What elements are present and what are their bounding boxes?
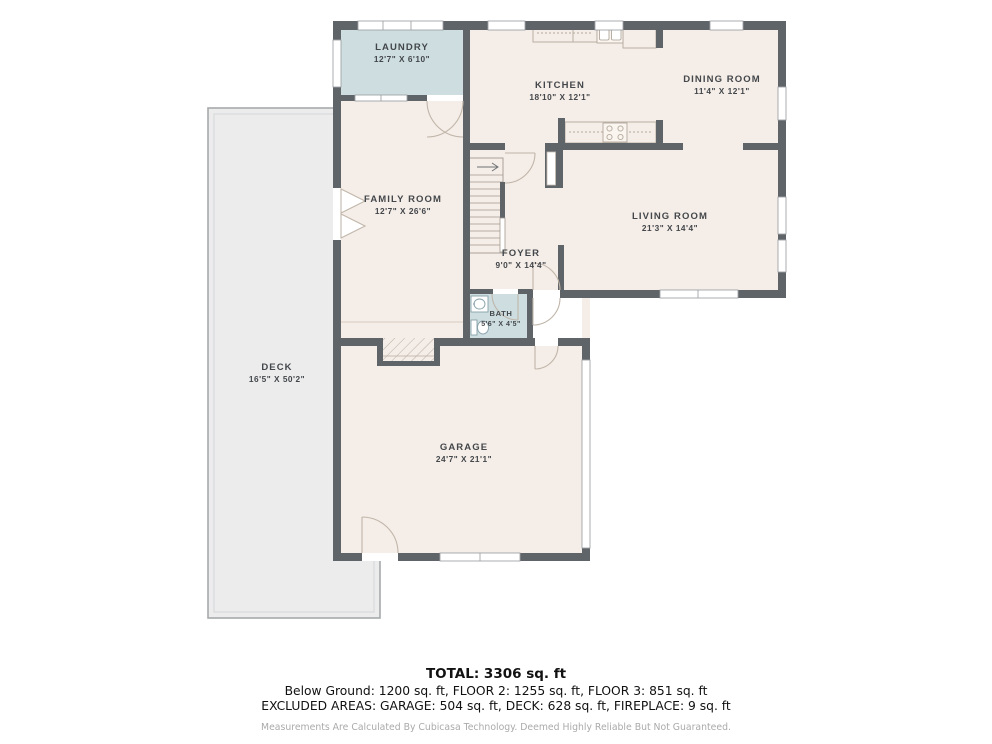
floor-plan-svg: LAUNDRY 12'7" X 6'10" KITCHEN 18'10" X 1… (0, 0, 992, 660)
room-label-bath: BATH (490, 309, 513, 318)
room-label-garage: GARAGE (440, 442, 488, 453)
bathroom-sink-icon (471, 296, 488, 312)
front-stoop (533, 298, 582, 338)
basement-stairs-hatch-icon (377, 338, 440, 366)
room-label-living: LIVING ROOM (632, 211, 708, 222)
fireplace-icon (545, 143, 563, 188)
footer: TOTAL: 3306 sq. ft Below Ground: 1200 sq… (0, 666, 992, 733)
room-dims-family: 12'7" X 26'6" (375, 206, 431, 216)
room-label-laundry: LAUNDRY (375, 42, 429, 53)
stair-railing-wall (500, 182, 505, 218)
room-dims-garage: 24'7" X 21'1" (436, 454, 492, 464)
room-label-family: FAMILY ROOM (364, 194, 442, 205)
room-label-kitchen: KITCHEN (535, 80, 585, 91)
total-area-text: TOTAL: 3306 sq. ft (0, 666, 992, 682)
floor-plan: LAUNDRY 12'7" X 6'10" KITCHEN 18'10" X 1… (0, 0, 992, 660)
garage-door-band (582, 360, 590, 548)
room-dims-laundry: 12'7" X 6'10" (374, 54, 430, 64)
room-dims-dining: 11'4" X 12'1" (694, 86, 750, 96)
room-dims-foyer: 9'0" X 14'4" (495, 260, 546, 270)
room-label-foyer: FOYER (502, 248, 540, 259)
disclaimer-text: Measurements Are Calculated By Cubicasa … (0, 722, 992, 733)
staircase-icon (467, 158, 505, 253)
room-dims-deck: 16'5" X 50'2" (249, 374, 305, 384)
room-label-dining: DINING ROOM (683, 74, 761, 85)
excluded-areas-text: EXCLUDED AREAS: GARAGE: 504 sq. ft, DECK… (0, 699, 992, 714)
room-dims-kitchen: 18'10" X 12'1" (529, 92, 590, 102)
room-dims-living: 21'3" X 14'4" (642, 223, 698, 233)
room-label-deck: DECK (261, 362, 292, 373)
floor-areas-text: Below Ground: 1200 sq. ft, FLOOR 2: 1255… (0, 684, 992, 699)
room-dims-bath: 5'6" X 4'5" (481, 321, 521, 328)
stair-railing-open (500, 218, 505, 252)
